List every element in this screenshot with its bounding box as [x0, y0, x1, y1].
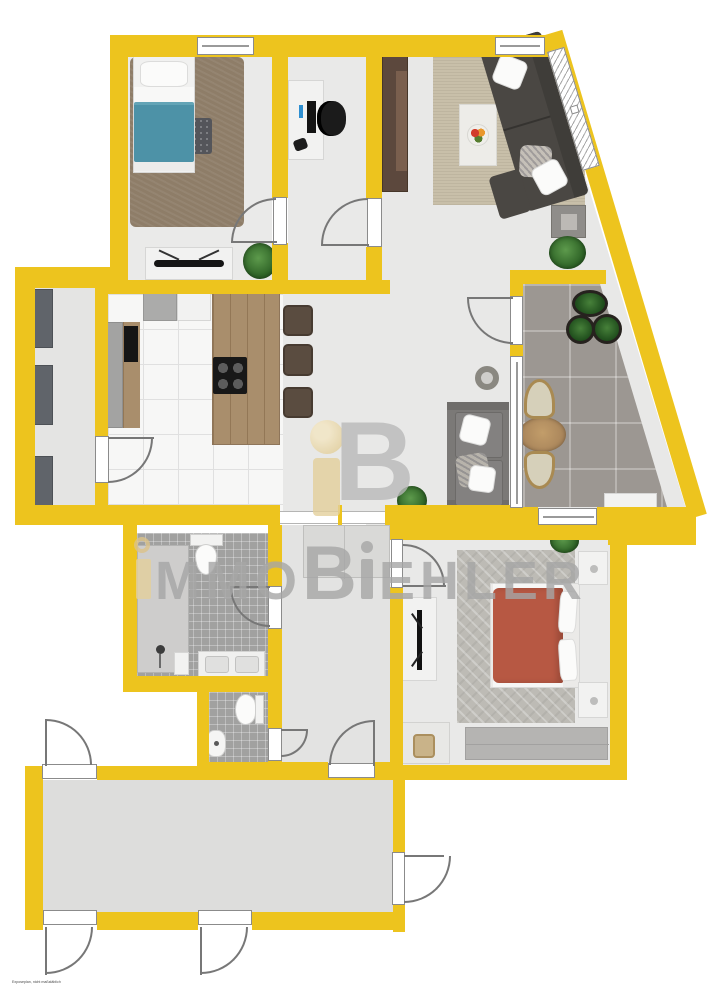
wall — [268, 525, 282, 587]
bed-duvet-terracotta — [493, 588, 563, 683]
door-frame-terrace-top — [42, 764, 97, 779]
wall — [110, 35, 557, 57]
door-swing-arc — [46, 719, 92, 765]
wall — [123, 525, 137, 677]
door-frame-terrace-bottom-mid — [198, 910, 252, 925]
toilet-tank — [255, 695, 264, 724]
tv-sideboard — [145, 247, 233, 280]
wardrobe-shelf — [396, 71, 407, 171]
wc-hand-sink — [206, 730, 226, 757]
door-frame-wc — [268, 728, 282, 761]
bottle-icon — [299, 105, 303, 118]
storage-cabinet — [34, 365, 53, 425]
bed-pillow — [558, 590, 579, 633]
floor-terrace — [43, 780, 393, 912]
tv-leg-icon — [199, 249, 220, 260]
double-bed — [490, 583, 580, 688]
balcony-round-table — [519, 417, 566, 452]
wall — [268, 628, 282, 677]
side-table-top — [561, 214, 577, 230]
shower-bar-icon — [159, 654, 161, 668]
bar-chair — [283, 344, 313, 376]
double-vanity — [198, 651, 265, 677]
wall — [366, 52, 382, 198]
bathroom-cabinet — [174, 652, 189, 675]
storage-cabinet — [34, 289, 53, 348]
toilet-bowl — [235, 694, 256, 725]
wall — [393, 780, 405, 853]
bed-duvet-teal — [134, 102, 194, 162]
wall — [272, 243, 288, 283]
wall — [268, 692, 282, 730]
threshold — [280, 511, 338, 524]
monitor-icon — [307, 101, 316, 133]
wardrobe-dark — [382, 50, 408, 192]
wardrobe-divider — [466, 744, 609, 745]
bed-pillow — [558, 638, 579, 681]
wall — [25, 766, 42, 780]
wall — [95, 288, 108, 436]
desk-chair — [413, 734, 435, 758]
plant-pot-icon — [566, 315, 595, 344]
closet-divider — [344, 526, 345, 579]
wall — [272, 57, 288, 198]
window-balcony-bottom — [538, 508, 597, 525]
door-swing-arc — [46, 927, 93, 974]
door-frame-terrace-bottom-left — [43, 910, 97, 925]
window — [495, 37, 545, 55]
plant-pot-icon — [572, 290, 608, 317]
threshold — [342, 511, 385, 524]
built-in-closet — [303, 525, 390, 578]
wall — [366, 247, 382, 283]
desk-item — [293, 137, 309, 152]
sofa-pillow — [490, 53, 529, 92]
floor-plan: B MMOB EHLER Exposeplan, nicht maßstäbli… — [0, 0, 707, 1000]
wall — [390, 587, 403, 765]
wall — [110, 35, 128, 287]
wall — [15, 267, 35, 520]
nightstand — [578, 551, 608, 585]
door-frame-office — [367, 198, 382, 247]
handle-icon — [590, 565, 598, 573]
wall — [610, 527, 627, 780]
tv-flat-icon — [154, 260, 224, 267]
plant-icon — [549, 236, 586, 269]
sofa-armrest — [447, 402, 509, 410]
window-mullion — [516, 362, 518, 504]
bar-chair — [283, 305, 313, 336]
round-side-table — [475, 366, 499, 390]
bar-chair — [283, 387, 313, 418]
toilet — [190, 534, 223, 577]
oven-icon — [124, 326, 138, 362]
door-swing-arc — [404, 856, 451, 903]
wall — [95, 280, 390, 294]
bed-foot-rail — [134, 162, 194, 171]
toilet-bowl — [195, 544, 217, 575]
wall — [25, 912, 43, 930]
door-frame-bedroom2 — [391, 539, 403, 588]
office-chair — [317, 101, 346, 136]
lounge-sofa — [447, 402, 509, 508]
bedroom-desk — [402, 722, 450, 764]
fruit-bowl-icon — [467, 124, 489, 146]
handle-icon — [590, 697, 598, 705]
tv-leg-icon — [159, 249, 180, 260]
window-balcony-left — [510, 356, 523, 508]
window-mullion — [543, 516, 594, 518]
sofa-pillow — [467, 464, 496, 493]
wall — [97, 912, 198, 930]
wall — [390, 765, 627, 780]
disclaimer-text: Exposeplan, nicht maßstäblich — [12, 980, 147, 984]
window-mullion — [500, 45, 540, 47]
bedroom-wardrobe — [465, 727, 608, 760]
wall — [510, 270, 606, 284]
cooktop-icon — [213, 357, 247, 394]
tv-flat-icon — [417, 610, 422, 670]
nightstand — [578, 682, 608, 718]
plant-pot-icon — [592, 314, 622, 344]
side-table — [551, 205, 586, 238]
wc-toilet — [235, 691, 265, 728]
window-mullion — [202, 45, 249, 47]
single-bed — [133, 55, 195, 173]
kitchen-counter-gray — [106, 322, 123, 428]
tv-board — [400, 597, 437, 681]
window-cap — [570, 105, 580, 115]
sofa-seam — [503, 115, 551, 131]
wall — [197, 692, 209, 763]
wall — [15, 505, 280, 525]
door-swing-arc — [201, 927, 248, 974]
sink-basin — [235, 656, 259, 673]
door-frame-bathroom — [268, 586, 282, 629]
door-frame-kitchen — [95, 436, 109, 483]
sink-drain-icon — [214, 741, 219, 746]
wall — [25, 766, 43, 930]
shower-head-icon — [156, 645, 165, 654]
sink-basin — [205, 656, 229, 673]
bed-pillow — [140, 61, 188, 87]
window — [197, 37, 254, 55]
wall — [123, 676, 282, 692]
wall — [252, 912, 403, 930]
door-frame-corridor-terrace — [328, 763, 375, 778]
